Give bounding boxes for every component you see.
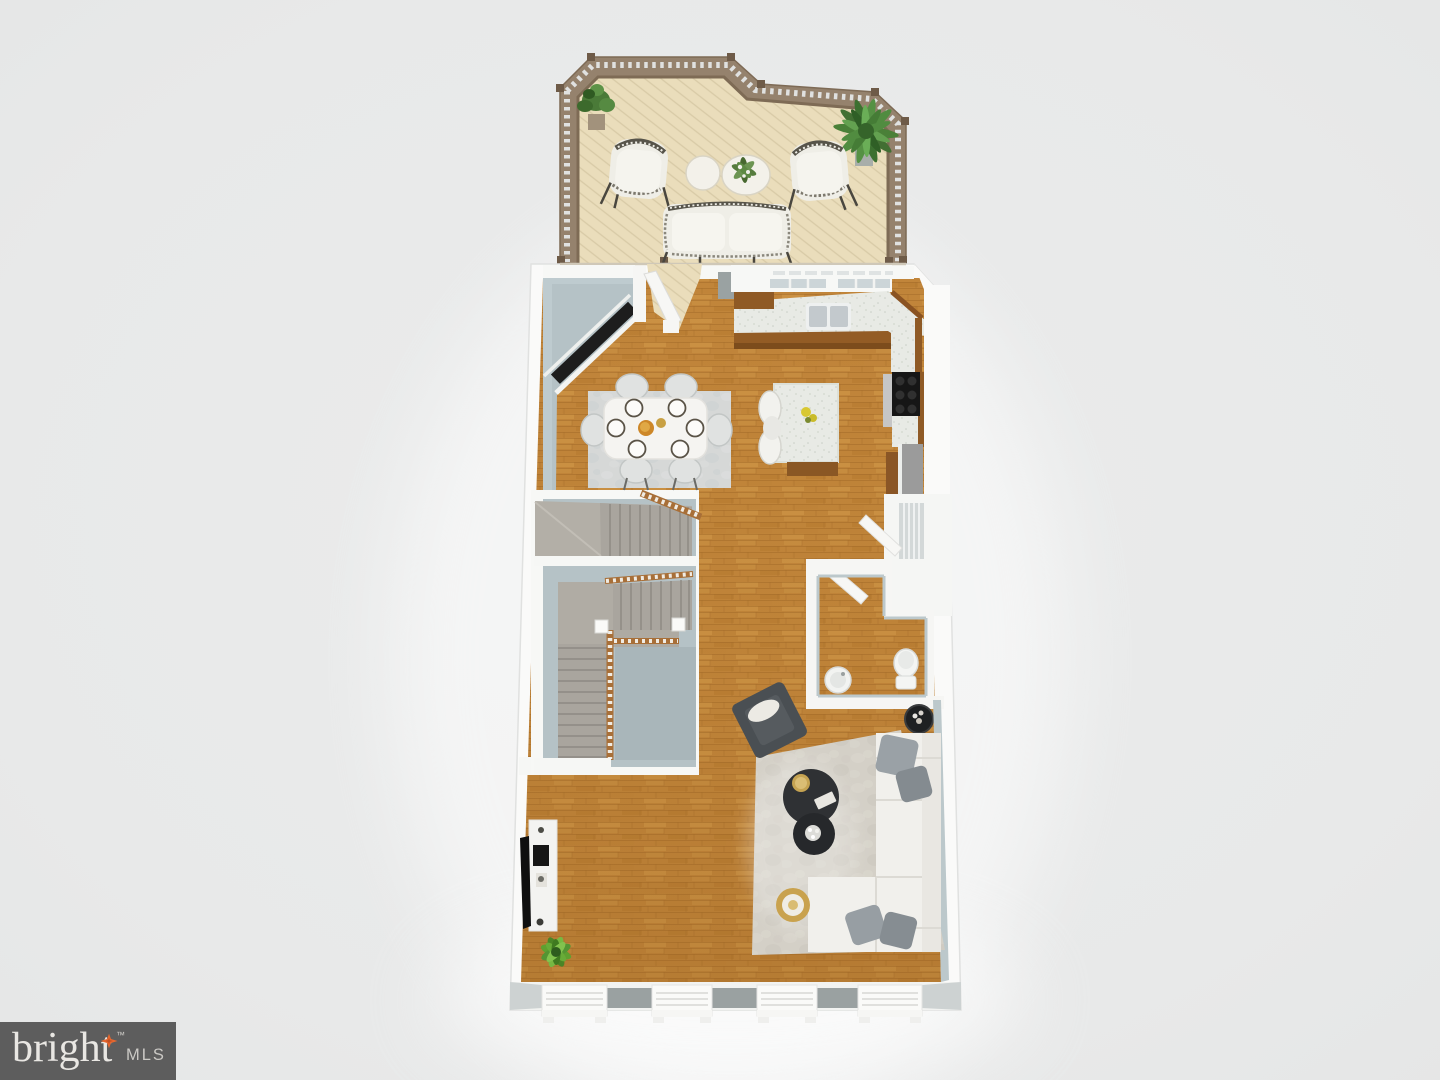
svg-text:bright: bright xyxy=(12,1025,113,1071)
svg-text:MLS: MLS xyxy=(126,1046,166,1064)
svg-text:™: ™ xyxy=(116,1030,125,1040)
